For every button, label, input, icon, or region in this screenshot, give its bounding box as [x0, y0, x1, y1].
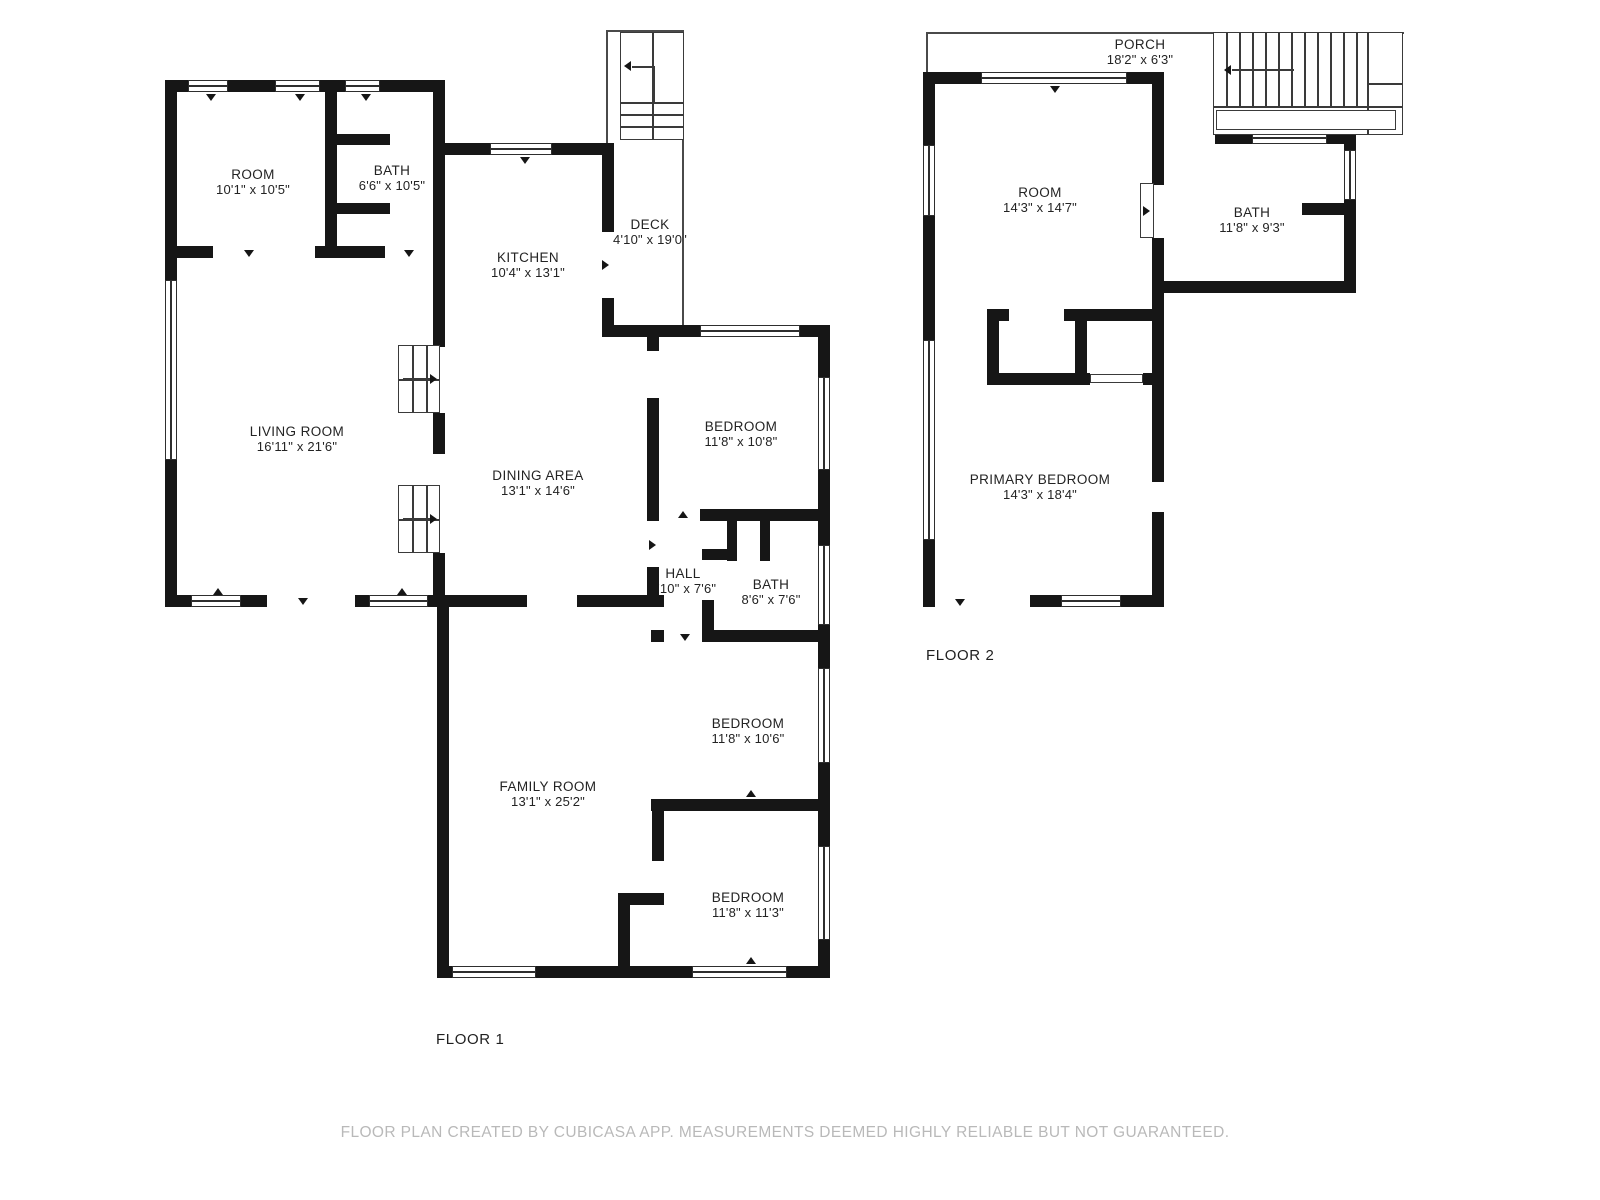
room-label-f1-dining-area: DINING AREA 13'1" x 14'6": [492, 468, 583, 498]
room-name: HALL: [650, 566, 716, 581]
wall-segment: [165, 595, 191, 607]
wall-segment: [337, 134, 390, 145]
window: [490, 143, 552, 155]
room-label-f2-porch: PORCH 18'2" x 6'3": [1107, 37, 1173, 67]
stair-line: [653, 66, 655, 102]
wall-segment: [647, 398, 659, 521]
disclaimer-text: FLOOR PLAN CREATED BY CUBICASA APP. MEAS…: [341, 1124, 1230, 1142]
room-name: BATH: [359, 163, 425, 178]
door-marker: [397, 588, 407, 595]
wall-segment: [651, 630, 664, 642]
wall-segment: [433, 80, 445, 260]
room-label-f1-family-room: FAMILY ROOM 13'1" x 25'2": [500, 779, 597, 809]
stair-line: [620, 114, 684, 116]
wall-segment: [241, 595, 267, 607]
window: [452, 966, 536, 978]
wall-segment: [651, 799, 830, 811]
window: [700, 325, 800, 337]
door-marker: [649, 540, 656, 550]
door-marker: [298, 598, 308, 605]
room-label-f1-room: ROOM 10'1" x 10'5": [216, 167, 290, 197]
stair-line: [1317, 32, 1319, 106]
wall-segment: [165, 258, 177, 280]
wall-segment: [1152, 72, 1164, 185]
wall-segment: [618, 893, 664, 905]
room-name: ROOM: [1003, 185, 1077, 200]
wall-segment: [1143, 373, 1164, 385]
wall-segment: [1302, 203, 1344, 215]
room-dimensions: 13'1" x 14'6": [492, 483, 583, 498]
door-marker: [520, 157, 530, 164]
wall-segment: [704, 630, 830, 642]
deck-porch-outline: [606, 30, 608, 143]
door-marker: [746, 790, 756, 797]
wall-segment: [1030, 595, 1061, 607]
room-dimensions: 16'11" x 21'6": [250, 439, 344, 454]
wall-segment: [652, 811, 664, 861]
wall-segment: [437, 595, 449, 978]
wall-segment: [760, 521, 770, 561]
room-dimensions: 11'8" x 11'3": [712, 905, 785, 920]
stair-direction-arrow: [624, 61, 631, 71]
stair-line: [1304, 32, 1306, 106]
door-marker: [680, 634, 690, 641]
room-label-f1-bedroom-top: BEDROOM 11'8" x 10'8": [705, 419, 778, 449]
door-leaf: [1090, 374, 1143, 383]
stair-line: [1343, 32, 1345, 106]
room-name: ROOM: [216, 167, 290, 182]
door-marker: [295, 94, 305, 101]
wall-segment: [433, 413, 445, 454]
room-label-f1-deck: DECK 4'10" x 19'0": [613, 217, 687, 247]
wall-segment: [325, 92, 337, 246]
room-dimensions: 10'4" x 13'1": [491, 265, 565, 280]
room-dimensions: 4'10" x 19'0": [613, 232, 687, 247]
window: [692, 966, 787, 978]
window: [818, 846, 830, 940]
room-dimensions: 11'8" x 10'8": [705, 434, 778, 449]
door-marker: [602, 260, 609, 270]
room-label-f2-bath: BATH 11'8" x 9'3": [1219, 205, 1285, 235]
stair-landing: [1216, 110, 1396, 130]
room-name: KITCHEN: [491, 250, 565, 265]
door-marker: [746, 957, 756, 964]
window: [188, 80, 228, 92]
door-marker: [244, 250, 254, 257]
window: [923, 340, 935, 540]
window: [1061, 595, 1121, 607]
room-name: BEDROOM: [712, 890, 785, 905]
wall-segment: [1152, 281, 1356, 293]
room-label-f1-living-room: LIVING ROOM 16'11" x 21'6": [250, 424, 344, 454]
stair-line: [1213, 106, 1403, 108]
room-name: BATH: [1219, 205, 1285, 220]
stair-line: [620, 126, 684, 128]
wall-segment: [1152, 512, 1164, 607]
stair-direction-arrow: [1224, 65, 1231, 75]
room-name: PRIMARY BEDROOM: [970, 472, 1111, 487]
wall-segment: [165, 80, 177, 258]
window: [818, 545, 830, 625]
room-name: PORCH: [1107, 37, 1173, 52]
room-label-f1-kitchen: KITCHEN 10'4" x 13'1": [491, 250, 565, 280]
floor-plan-canvas: ROOM 10'1" x 10'5" BATH 6'6" x 10'5" KIT…: [0, 0, 1600, 1200]
wall-segment: [923, 595, 935, 607]
wall-segment: [602, 298, 614, 325]
room-name: BEDROOM: [705, 419, 778, 434]
wall-segment: [727, 521, 737, 561]
room-name: DINING AREA: [492, 468, 583, 483]
wall-segment: [602, 143, 614, 232]
room-dimensions: 11'8" x 10'6": [712, 731, 785, 746]
deck-porch-outline: [926, 32, 928, 72]
wall-segment: [987, 373, 1090, 385]
window: [1344, 150, 1356, 200]
window: [818, 377, 830, 470]
door-marker: [404, 250, 414, 257]
window: [981, 72, 1127, 84]
door-marker: [213, 588, 223, 595]
wall-segment: [165, 246, 213, 258]
stair-direction-arrow: [430, 374, 437, 384]
room-dimensions: 13'1" x 25'2": [500, 794, 597, 809]
room-dimensions: 8'6" x 7'6": [741, 592, 800, 607]
window: [369, 595, 428, 607]
room-name: BEDROOM: [712, 716, 785, 731]
room-name: BATH: [741, 577, 800, 592]
stair-line: [1367, 83, 1403, 85]
stair-line: [403, 378, 431, 380]
room-label-f1-bath-lower: BATH 8'6" x 7'6": [741, 577, 800, 607]
wall-segment: [700, 509, 830, 521]
room-name: DECK: [613, 217, 687, 232]
room-dimensions: 6'6" x 10'5": [359, 178, 425, 193]
wall-segment: [445, 595, 527, 607]
window: [923, 145, 935, 216]
door-marker: [1050, 86, 1060, 93]
room-dimensions: 14'3" x 18'4": [970, 487, 1111, 502]
door-marker: [678, 511, 688, 518]
wall-segment: [1075, 309, 1087, 373]
floor2-caption: FLOOR 2: [926, 647, 994, 664]
room-label-f1-bedroom-bottom: BEDROOM 11'8" x 11'3": [712, 890, 785, 920]
floor1-caption: FLOOR 1: [436, 1031, 504, 1048]
wall-segment: [165, 460, 177, 607]
stair-line: [620, 102, 684, 104]
window: [818, 668, 830, 763]
room-label-f1-bedroom-middle: BEDROOM 11'8" x 10'6": [712, 716, 785, 746]
wall-segment: [647, 337, 659, 351]
wall-segment: [337, 203, 390, 214]
window: [275, 80, 320, 92]
wall-segment: [1152, 238, 1164, 482]
window: [165, 280, 177, 460]
room-label-f1-hall: HALL 2'10" x 7'6": [650, 566, 716, 596]
wall-segment: [1121, 595, 1164, 607]
wall-segment: [647, 567, 659, 607]
door-marker: [955, 599, 965, 606]
window: [191, 595, 241, 607]
room-label-f2-room: ROOM 14'3" x 14'7": [1003, 185, 1077, 215]
stair-line: [1232, 69, 1294, 71]
room-dimensions: 18'2" x 6'3": [1107, 52, 1173, 67]
room-dimensions: 14'3" x 14'7": [1003, 200, 1077, 215]
door-marker: [206, 94, 216, 101]
room-dimensions: 2'10" x 7'6": [650, 581, 716, 596]
stair-line: [1330, 32, 1332, 106]
door-marker: [361, 94, 371, 101]
stair-line: [632, 66, 654, 68]
wall-segment: [315, 246, 385, 258]
room-name: FAMILY ROOM: [500, 779, 597, 794]
door-marker: [1143, 206, 1150, 216]
room-label-f2-primary-bedroom: PRIMARY BEDROOM 14'3" x 18'4": [970, 472, 1111, 502]
window: [345, 80, 380, 92]
stair-line: [1356, 32, 1358, 106]
room-dimensions: 11'8" x 9'3": [1219, 220, 1285, 235]
wall-segment: [702, 549, 727, 560]
wall-segment: [355, 595, 369, 607]
room-label-f1-bath-upper: BATH 6'6" x 10'5": [359, 163, 425, 193]
room-dimensions: 10'1" x 10'5": [216, 182, 290, 197]
stair-direction-arrow: [430, 514, 437, 524]
stair-line: [403, 518, 431, 520]
room-name: LIVING ROOM: [250, 424, 344, 439]
wall-segment: [433, 260, 445, 347]
